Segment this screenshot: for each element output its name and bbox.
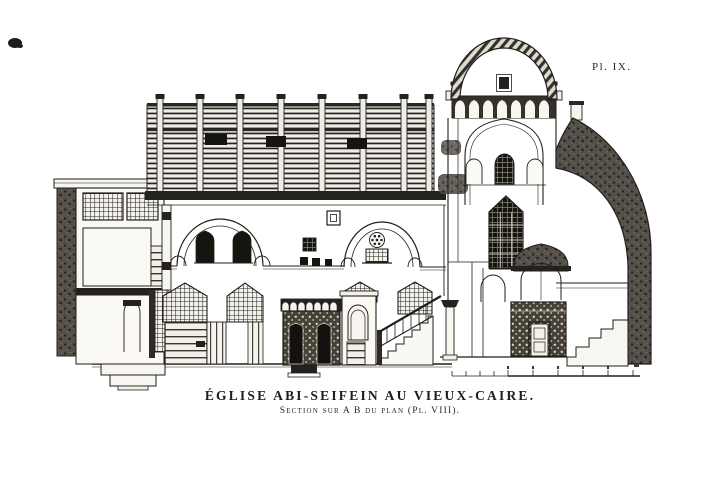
ink-smudge (8, 38, 23, 48)
sanctuary (448, 196, 571, 357)
caption-subtitle: Section sur A B du plan (Pl. VIII). (10, 406, 720, 416)
engraving-plate-page: Pl. IX. (0, 0, 720, 479)
apse-wall (556, 101, 651, 366)
scale-ticks (452, 370, 633, 376)
spandrel-windows (300, 238, 332, 266)
nave-column (441, 300, 459, 360)
choir-screen (281, 299, 341, 365)
timber-roof (145, 94, 446, 205)
nave-arches (162, 205, 446, 296)
dome (446, 38, 562, 100)
hanging-lamp (327, 211, 340, 225)
ambon (340, 291, 378, 365)
sanctuary-screen (511, 302, 566, 356)
caption-title: ÉGLISE ABI-SEIFEIN AU VIEUX-CAIRE. (10, 388, 720, 404)
floor-basin (288, 365, 320, 377)
rosette-window (362, 233, 392, 264)
left-stair-tower (54, 179, 168, 390)
plate-caption: ÉGLISE ABI-SEIFEIN AU VIEUX-CAIRE. Secti… (10, 388, 720, 416)
